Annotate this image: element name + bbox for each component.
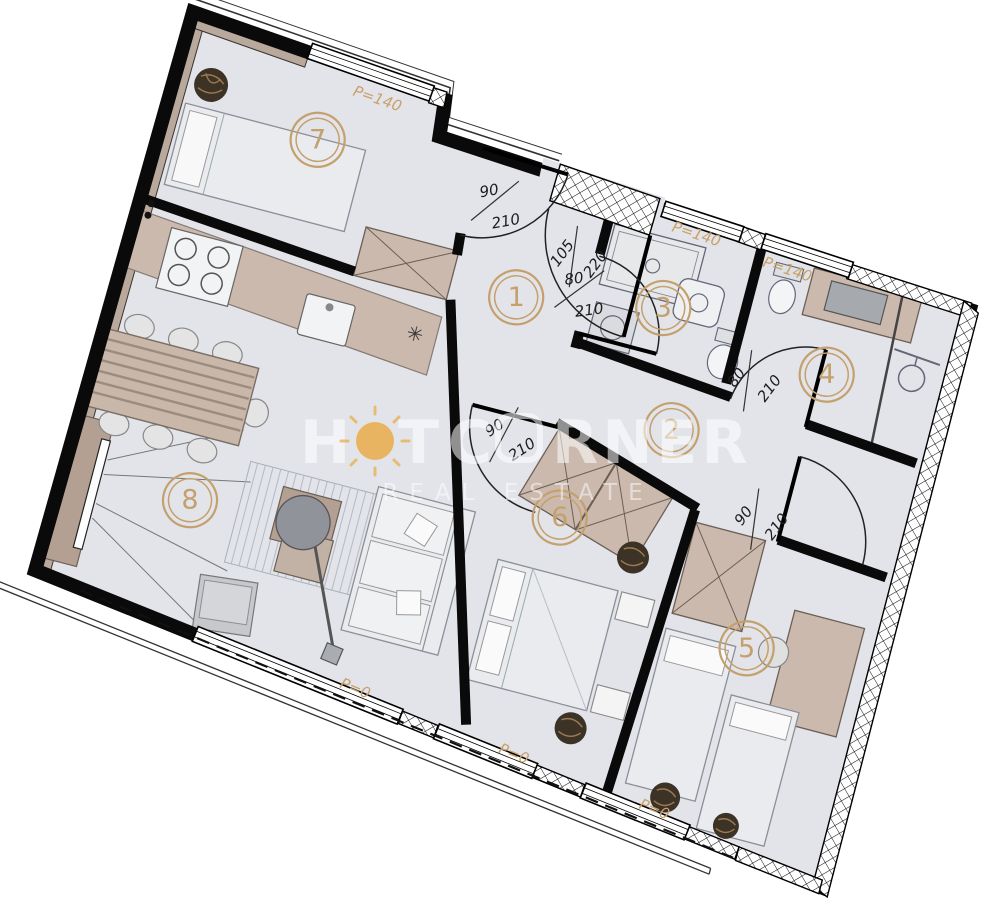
watermark-brand-c: C (448, 408, 492, 478)
armchair (192, 574, 258, 636)
room-number: 7 (309, 124, 326, 155)
room-number: 6 (551, 502, 568, 533)
watermark-brand-t: T (398, 408, 439, 478)
room-number: 1 (508, 282, 525, 313)
svg-text:90: 90 (478, 180, 500, 201)
room-number: 3 (655, 293, 672, 324)
watermark-brand-h: H (300, 408, 350, 478)
room-number: 8 (181, 485, 198, 516)
floor-plan-page: ✳ (0, 0, 992, 901)
svg-text:80: 80 (563, 269, 584, 289)
svg-text:210: 210 (574, 299, 605, 320)
watermark-tagline: REAL ESTATE (382, 480, 653, 506)
room-number: 5 (738, 633, 755, 664)
floor-plan-svg: ✳ (0, 0, 992, 901)
room-number: 4 (818, 359, 835, 390)
watermark-brand-rner: RNER (552, 408, 752, 478)
